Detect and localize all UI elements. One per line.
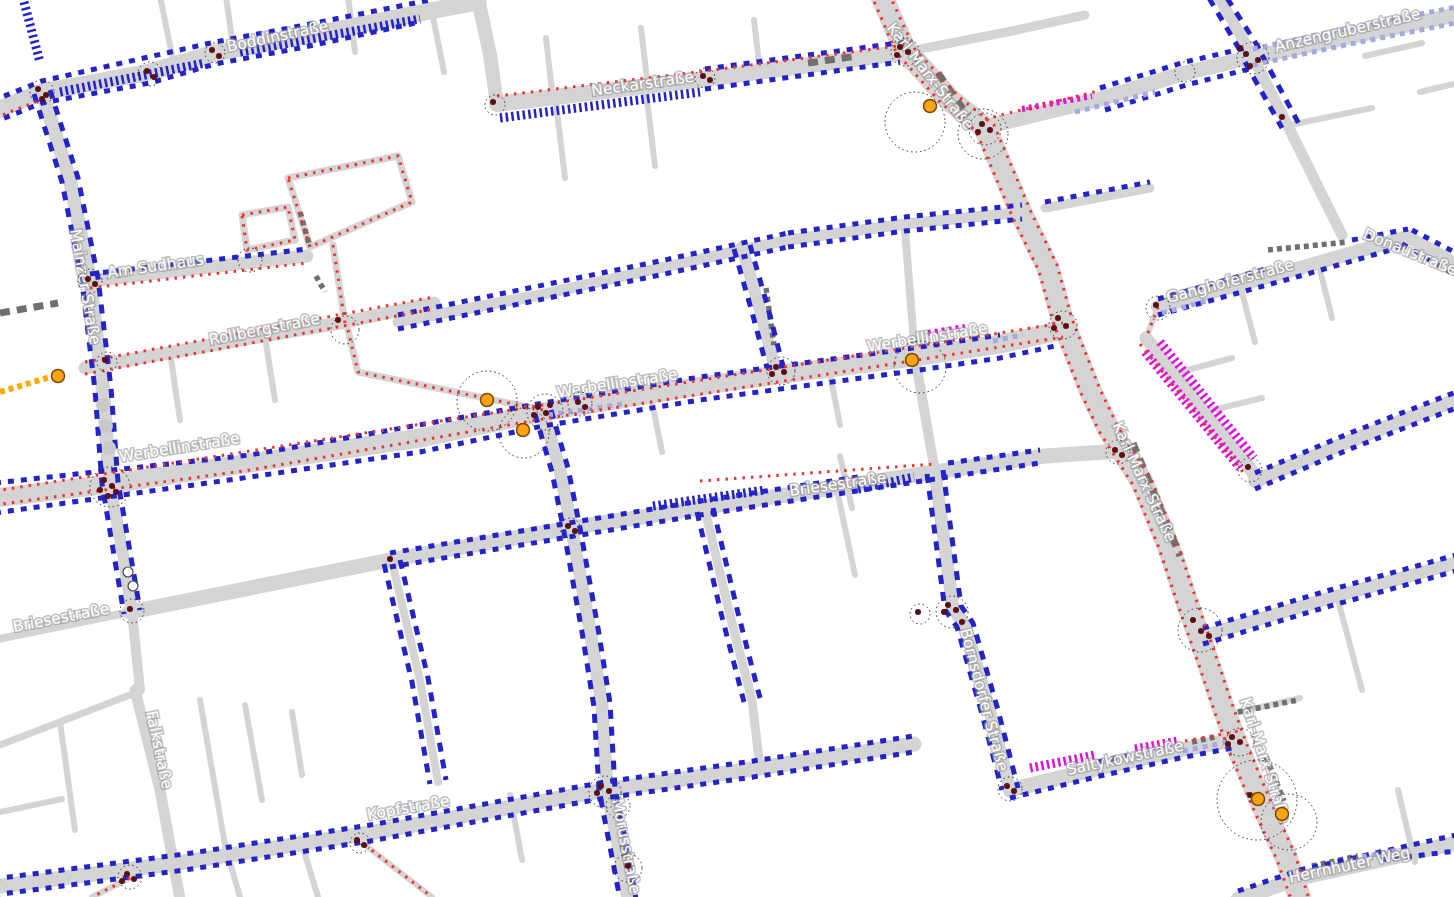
label-boddinstrasse: Boddinstraße [225,17,330,56]
gps-point-node[interactable] [52,370,65,383]
gps-point-node[interactable] [517,424,530,437]
way-anzengruberstrasse [985,15,1454,127]
map-editor-viewport[interactable]: Boddinstraße Neckarstraße Karl-Marx-Stra… [0,0,1454,897]
map-canvas[interactable]: Boddinstraße Neckarstraße Karl-Marx-Stra… [0,0,1454,897]
label-herrnhuter-weg: Herrnhuter Weg [1287,844,1412,887]
label-briesestrasse-west: Briesestraße [11,600,110,636]
gps-point-node[interactable] [1252,793,1265,806]
label-mainzer-strasse: Mainzer Straße [66,228,104,346]
gps-point-node[interactable] [1276,808,1289,821]
way-boddinstrasse [0,2,478,112]
way-kopfstrasse [0,744,914,887]
gps-point-node[interactable] [906,354,919,367]
label-bornsdorfer-strasse: Bornsdorfer Straße [956,626,1011,773]
label-karl-marx-strasse-mid: Karl-Marx-Straße [1108,419,1179,545]
gps-point-node[interactable] [481,394,494,407]
gps-point-node[interactable] [924,100,937,113]
